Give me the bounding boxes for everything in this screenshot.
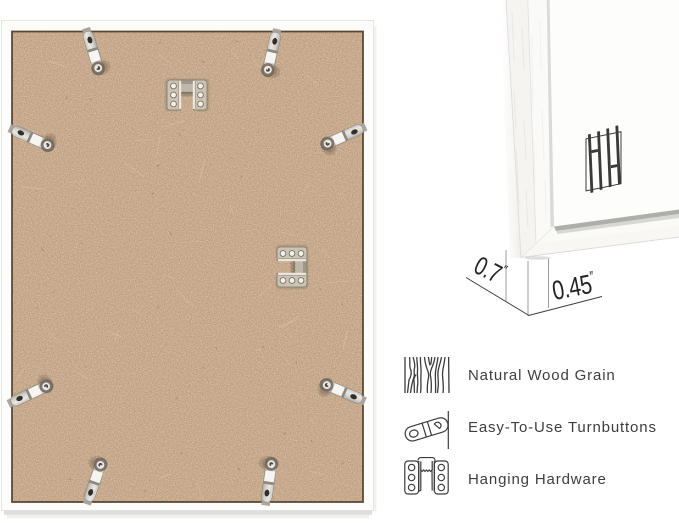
svg-text:0.45″: 0.45″ [550, 268, 599, 306]
svg-text:0.7″: 0.7″ [470, 250, 511, 290]
